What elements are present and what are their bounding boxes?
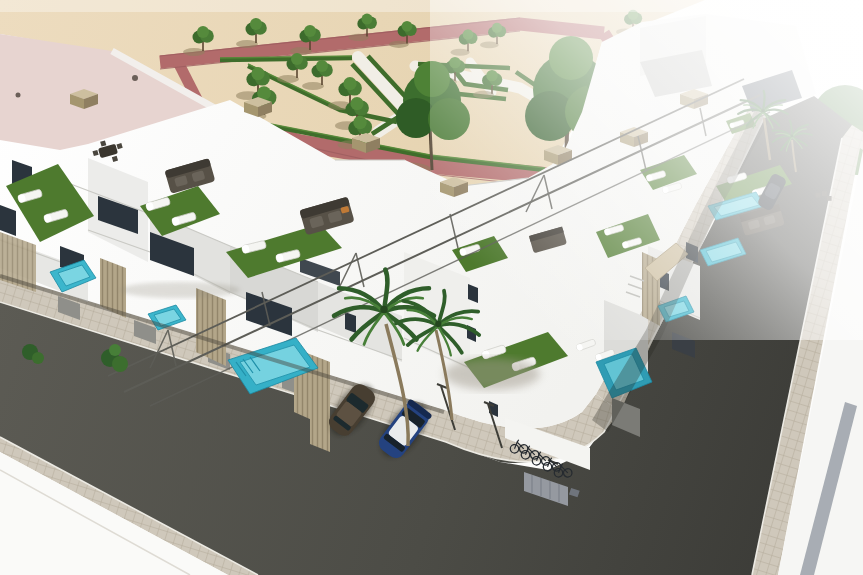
aerial-render-canvas: Aerial 3D render: new-build white townho… (0, 0, 863, 575)
overexposure-haze (430, 0, 863, 340)
top-fade (0, 0, 863, 12)
render-image: Aerial 3D render: new-build white townho… (0, 0, 863, 575)
